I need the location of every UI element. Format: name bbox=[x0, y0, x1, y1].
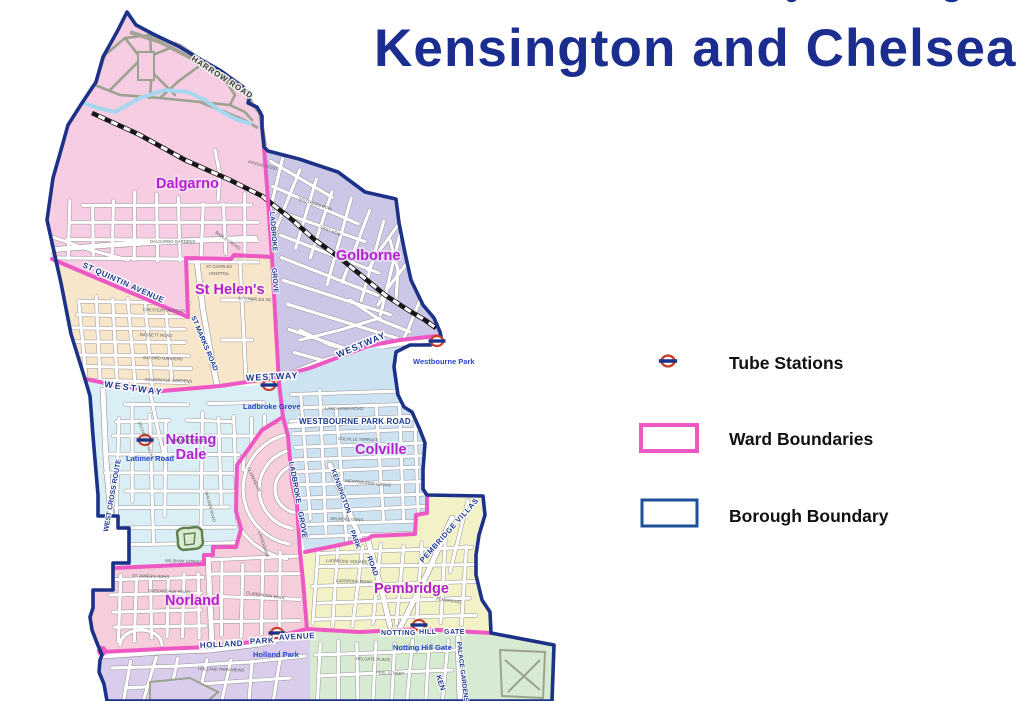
svg-text:Kensington and Chelsea: Kensington and Chelsea bbox=[374, 19, 1017, 78]
svg-text:GATE: GATE bbox=[444, 629, 465, 636]
svg-text:Dalgarno: Dalgarno bbox=[156, 176, 219, 192]
svg-text:ST CHARLES: ST CHARLES bbox=[206, 264, 232, 269]
svg-text:PARK: PARK bbox=[250, 636, 275, 646]
svg-text:Golborne: Golborne bbox=[336, 248, 400, 264]
svg-text:PEEL STREET: PEEL STREET bbox=[376, 670, 405, 676]
svg-text:Ladbroke Grove: Ladbroke Grove bbox=[243, 402, 301, 411]
svg-text:HOSPITAL: HOSPITAL bbox=[209, 271, 230, 276]
svg-text:BRAMLEY ROAD: BRAMLEY ROAD bbox=[172, 438, 205, 443]
svg-text:NOTTING: NOTTING bbox=[381, 630, 416, 637]
svg-text:Ward Boundaries: Ward Boundaries bbox=[729, 429, 873, 449]
svg-text:Borough Boundary: Borough Boundary bbox=[729, 506, 889, 526]
svg-text:Dale: Dale bbox=[176, 447, 207, 463]
svg-text:Westbourne Park: Westbourne Park bbox=[413, 357, 475, 366]
svg-text:Notting Hill Gate: Notting Hill Gate bbox=[393, 643, 452, 652]
svg-text:Holland Park: Holland Park bbox=[253, 650, 300, 659]
svg-text:WESTBOURNE PARK ROAD: WESTBOURNE PARK ROAD bbox=[299, 417, 411, 426]
svg-text:AVENUE: AVENUE bbox=[279, 631, 316, 642]
svg-text:Tube Stations: Tube Stations bbox=[729, 353, 844, 373]
svg-text:DALGARNO GARDENS: DALGARNO GARDENS bbox=[150, 239, 196, 244]
svg-text:HILL: HILL bbox=[419, 629, 437, 636]
svg-text:Colville: Colville bbox=[355, 442, 407, 458]
svg-text:Norland: Norland bbox=[165, 593, 220, 609]
svg-text:Pembridge: Pembridge bbox=[374, 581, 449, 597]
svg-text:LANCASTER ROAD: LANCASTER ROAD bbox=[325, 406, 363, 411]
